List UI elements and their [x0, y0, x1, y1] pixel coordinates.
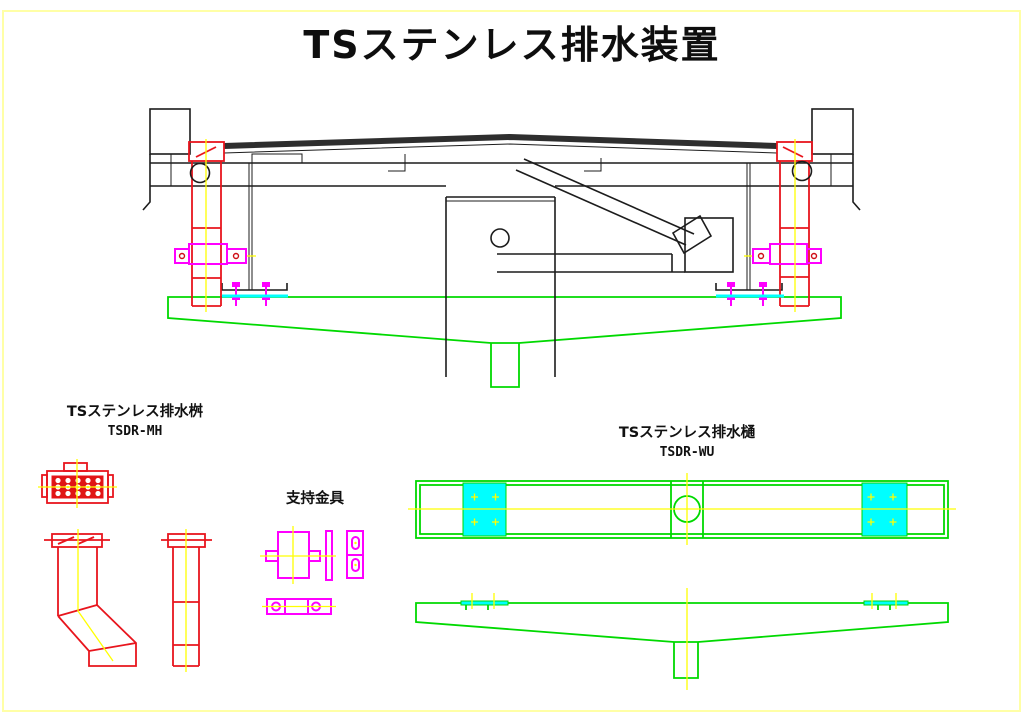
center-column — [446, 197, 733, 377]
anchor-bolt — [232, 282, 240, 306]
elbow-pipe-view — [44, 529, 136, 666]
anchor-bolt — [262, 282, 270, 306]
left-pipe-bracket — [175, 244, 256, 264]
slotted-plate-view — [347, 531, 363, 578]
base-plate-view — [262, 599, 336, 614]
drain-box-name: TSステンレス排水桝 — [40, 403, 230, 421]
drain-gutter-model: TSDR-WU — [592, 445, 782, 461]
clamp-side-view — [322, 531, 336, 580]
straight-pipe-view — [161, 529, 212, 672]
clamp-front-view — [260, 526, 330, 584]
drain-box-views — [38, 459, 212, 672]
anchor-bolts — [232, 282, 767, 306]
main-section-view — [143, 109, 860, 387]
label-support-bracket: 支持金具 — [268, 490, 362, 508]
gutter-cross-section — [168, 297, 841, 387]
drawing-page: TSステンレス排水装置 — [0, 0, 1024, 724]
drain-box-model: TSDR-MH — [40, 424, 230, 440]
gutter-elevation-view — [416, 588, 948, 690]
right-gasket-strip — [864, 601, 908, 605]
drain-gutter-name: TSステンレス排水樋 — [592, 424, 782, 442]
diagonal-brace — [516, 159, 711, 253]
strainer-plan-view — [38, 459, 117, 508]
roof-structure — [143, 109, 860, 210]
anchor-bolt — [759, 282, 767, 306]
gutter-plan-view — [408, 473, 956, 545]
technical-drawing-canvas — [0, 0, 1024, 724]
support-bracket-views — [260, 526, 363, 614]
anchor-bolt — [727, 282, 735, 306]
hanger-rods — [222, 163, 782, 290]
label-drain-box: TSステンレス排水桝 TSDR-MH — [40, 403, 230, 440]
left-gasket-strip — [461, 601, 508, 605]
label-drain-gutter: TSステンレス排水樋 TSDR-WU — [592, 424, 782, 461]
